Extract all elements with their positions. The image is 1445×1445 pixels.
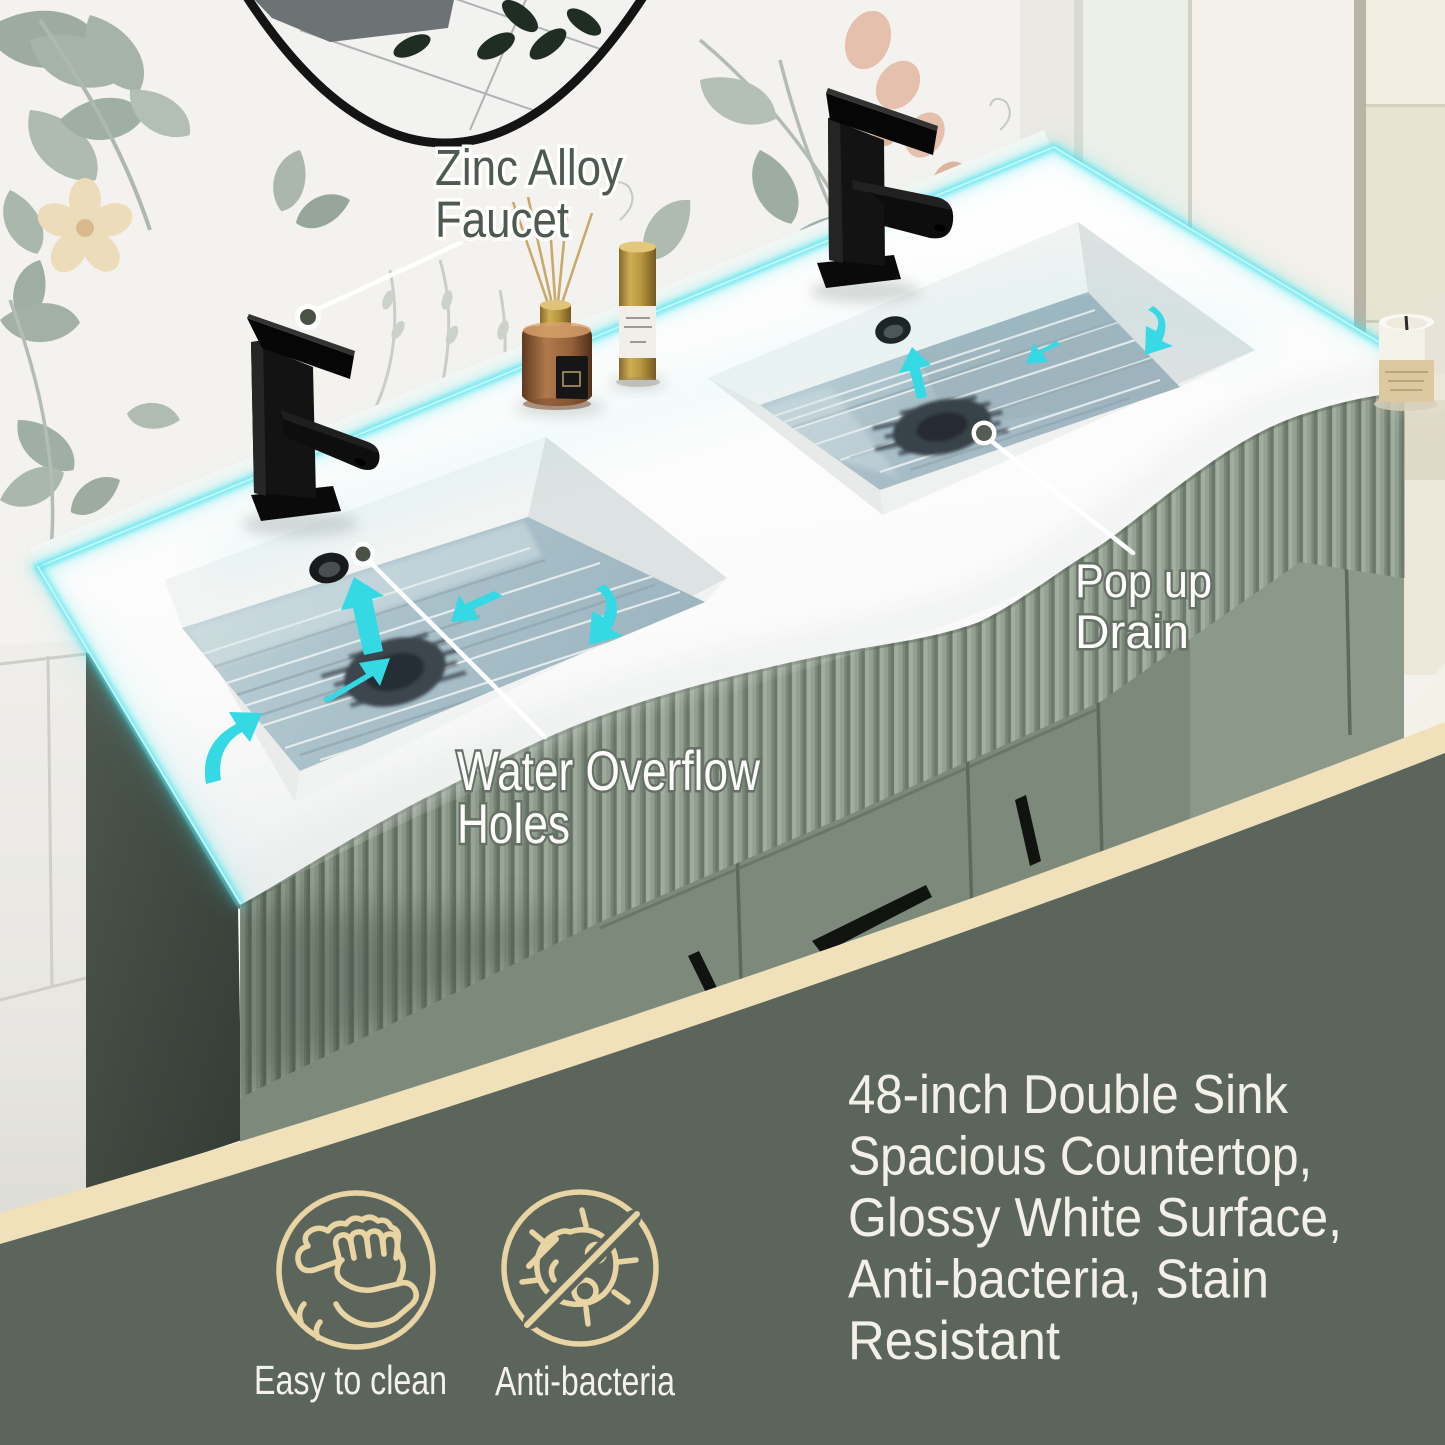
svg-text:Holes: Holes xyxy=(457,792,570,855)
svg-text:Drain: Drain xyxy=(1075,605,1189,658)
svg-text:48-inch Double Sink: 48-inch Double Sink xyxy=(848,1063,1288,1125)
svg-text:Anti-bacteria, Stain: Anti-bacteria, Stain xyxy=(848,1248,1269,1310)
svg-text:Easy to clean: Easy to clean xyxy=(254,1357,447,1403)
svg-text:Resistant: Resistant xyxy=(848,1309,1060,1371)
svg-text:Faucet: Faucet xyxy=(435,191,569,248)
svg-text:Pop up: Pop up xyxy=(1075,554,1212,607)
svg-text:Zinc Alloy: Zinc Alloy xyxy=(435,139,623,196)
svg-text:Anti-bacteria: Anti-bacteria xyxy=(495,1358,675,1404)
svg-text:Glossy White Surface,: Glossy White Surface, xyxy=(848,1186,1342,1248)
svg-text:Spacious Countertop,: Spacious Countertop, xyxy=(848,1125,1312,1187)
